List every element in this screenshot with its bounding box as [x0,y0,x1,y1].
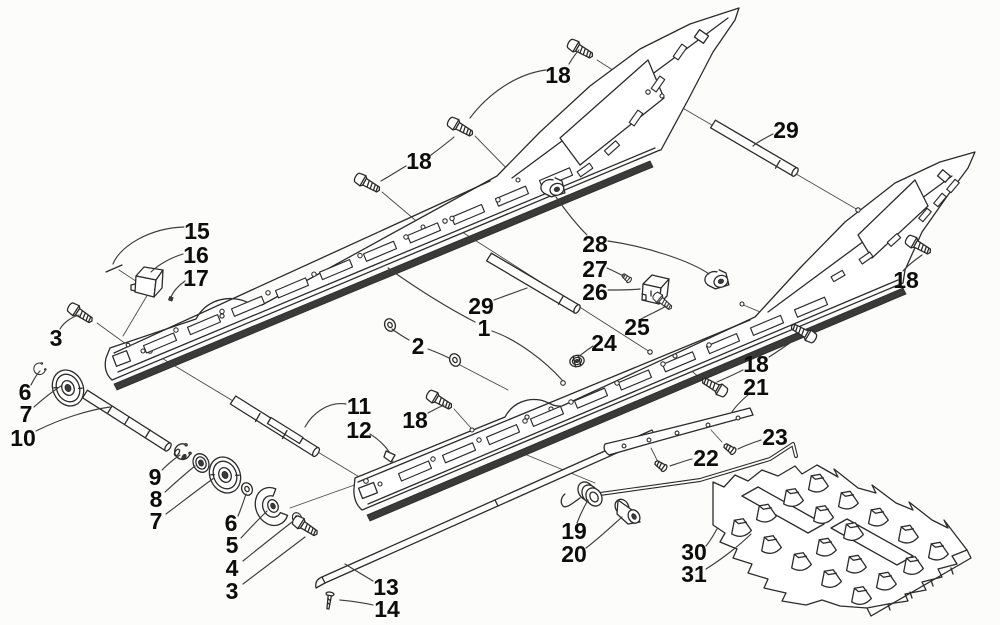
part-label-25: 25 [624,314,650,340]
part-label-31: 31 [681,561,707,587]
part-label-24: 24 [591,330,617,356]
bearing-8 [190,451,212,475]
part-label-22: 22 [693,445,719,471]
part-label-26: 26 [582,279,608,305]
nut-24 [569,354,585,368]
part-label-3-b: 3 [226,578,239,604]
part-label-18-d: 18 [402,407,428,433]
part-label-12: 12 [346,417,372,443]
part-label-21: 21 [743,374,769,400]
part-label-20: 20 [561,541,587,567]
screw-23 [722,442,737,456]
washer-2a [383,317,398,333]
spring-19 [561,479,605,509]
bolt-3-a [66,301,95,326]
bolt-18-b [446,115,476,139]
part-label-17: 17 [183,265,209,291]
wheel-7a [47,365,89,411]
axle-11 [230,396,320,458]
part-label-18-b: 18 [406,148,432,174]
screw-27 [621,272,633,283]
part-label-18-e: 18 [893,267,919,293]
part-label-10: 10 [10,425,36,451]
front-axle-shaft-10 [83,390,188,460]
exploded-parts-diagram: 18 29 18 15 16 17 28 27 26 25 24 18 29 1… [0,0,1000,625]
part-label-15: 15 [184,218,210,244]
part-label-2: 2 [412,333,425,359]
part-label-23: 23 [762,424,788,450]
circlip-6a [32,361,47,376]
part-label-7-b: 7 [150,508,163,534]
bumper-16 [131,267,163,297]
part-label-14: 14 [374,596,400,622]
part-label-3-a: 3 [50,325,63,351]
bolt-18-d [425,388,455,412]
bolt-18-c [353,171,383,195]
part-label-29-a: 29 [773,117,799,143]
screw-14 [324,592,334,610]
part-label-18-a: 18 [545,62,571,88]
bolt-18-a [566,37,596,61]
idler-half-5 [249,484,289,530]
track-segment-30 [713,465,971,616]
part-label-7-a: 7 [20,401,33,427]
screw-22 [653,459,668,473]
bolt-3-b [291,514,320,539]
part-label-11: 11 [347,393,372,419]
bushing-28b [703,267,730,292]
washer-6b [240,481,255,497]
part-label-28: 28 [582,231,608,257]
pin-15 [106,265,122,272]
parts-diagram-page: 18 29 18 15 16 17 28 27 26 25 24 18 29 1… [0,0,1000,625]
cross-tube-29-lower [487,253,582,314]
wheel-7b [204,452,246,498]
part-label-1: 1 [478,315,491,341]
